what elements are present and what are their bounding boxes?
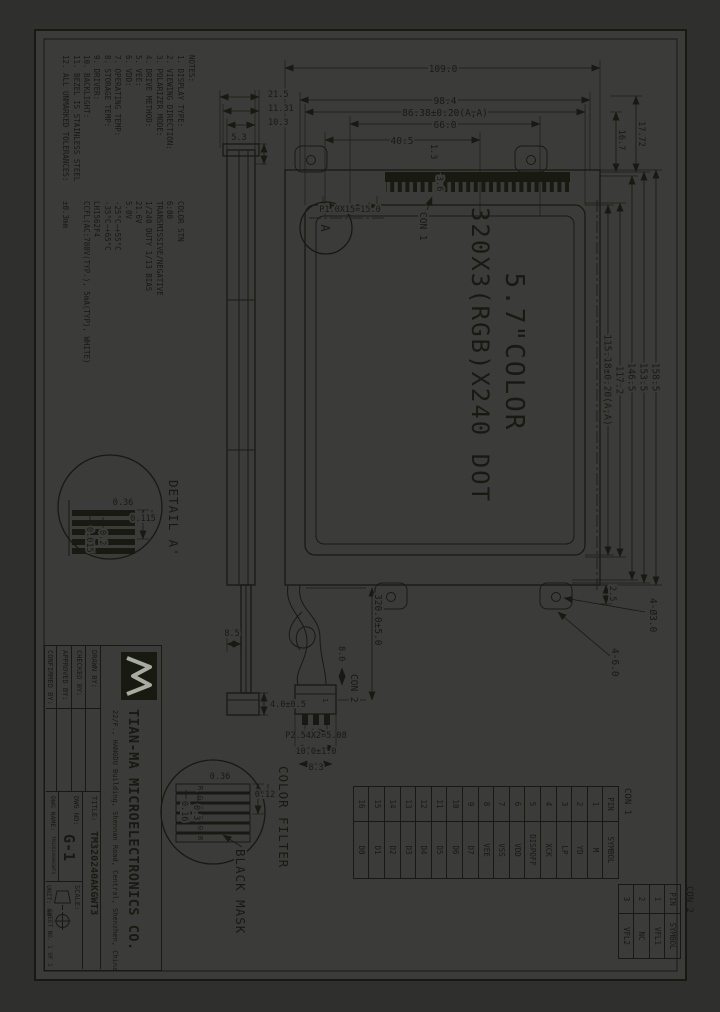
pin-cell: 2 [634,885,650,914]
detail-a-dim-width: 0.115 [130,514,156,524]
note-value: 5.0V [124,201,133,219]
con1-row: 9D7 [463,787,479,879]
note-label: 1. DISPLAY TYPE: [174,55,184,201]
detail-a-title: DETAIL A' [166,480,181,557]
con1-row: 5DISPOFF [525,787,541,879]
symbol-cell: D2 [385,822,401,879]
note-item-9: 9. DRIVER:LH1562F4 [91,55,101,365]
note-label: 4. DRIVE METHOD: [143,55,153,201]
con2-row: 2NC [634,885,650,959]
stripe-label-b2: B [196,836,204,840]
note-item-3: 3. POLARIZER MODE:TRANSMISSIVE/NEGATIVE [153,55,163,365]
con2-header-row: PINSYMBOL [665,885,681,959]
con1-row: 1M [587,787,603,879]
con2-table-title: CON 2 [684,886,694,959]
note-label: 10. BACKLIGHT: [81,55,91,201]
dim-height-2: 98.4 [434,96,457,107]
note-label: 9. DRIVER: [91,55,101,201]
note-item-4: 4. DRIVE METHOD:1/240 DUTY 1/13 BIAS [143,55,153,365]
approved-by-label: APPROVED BY: [61,646,71,701]
symbol-cell: LP [556,822,572,879]
dim-hole-offset: 2.5 [607,586,617,601]
color-filter-dim-3: 0.3 [191,805,201,820]
pin-cell: 1 [649,885,665,914]
dim-thickness-2: 11.31 [268,104,294,114]
con1-row: 6VDD [509,787,525,879]
dim-comb-width: 3.6 [434,176,444,191]
dim-con2-pitch: P2.54X2=5.08 [285,731,346,741]
note-item-1: 1. DISPLAY TYPE:COLOR STN [174,55,184,365]
note-item-7: 7. OPERATING TEMP:-25°C~+55°C [112,55,122,365]
symbol-cell: M [587,822,603,879]
pin-cell: 3 [618,885,634,914]
note-item-2: 2. VIEWING DIRECTION:6:00 [164,55,174,365]
note-value: COLOR STN [176,201,185,242]
con1-heatseal-pins [386,182,569,192]
dim-height-3: 66.0 [434,120,457,131]
dim-length-2: 153.5 [638,363,649,392]
dim-tabs: 4-6.0 [609,648,620,677]
con1-heatseal-bar [385,172,570,182]
note-item-8: 8. STORAGE TEMP:-35°C~+65°C [101,55,111,365]
con2-callout: CON 2 [348,674,359,703]
con2-pin-table: PINSYMBOL 1VFL1 2NC 3VFL2 [618,884,681,959]
dim-lip: 5.3 [231,133,246,143]
con2-pin1-label: 1 [321,698,329,702]
landscape-sheet: A CON 1 5.7"COLOR 320X3(RGB)X240 DOT 158… [0,0,720,1012]
dim-total-length: 158.5 [650,363,661,392]
pin-cell: 10 [447,787,463,822]
pin-cell: 14 [385,787,401,822]
con2-pin-header: PIN [665,885,681,914]
dim-total-height: 109.0 [429,64,458,75]
note-item-6: 6. VDD:5.0V [122,55,132,365]
con1-row: 11D5 [431,787,447,879]
dim-con1-pitch: P1.0X15=15.0 [319,205,380,215]
pin-cell: 4 [541,787,557,822]
note-value: LH1562F4 [92,201,101,237]
con1-header-row: PINSYMBOL [603,787,619,879]
note-value: -25°C~+55°C [113,201,122,251]
note-label: 5. VEE: [133,55,143,201]
note-value: CCFL(AC:780V(TYP.), 5mA(TYP), WHITE) [82,201,91,364]
detail-a-marker-label: A [318,224,332,232]
symbol-cell: D5 [431,822,447,879]
symbol-cell: D4 [416,822,432,879]
symbol-cell: XCK [541,822,557,879]
note-label: 8. STORAGE TEMP: [101,55,111,201]
color-filter-title: COLOR FILTER [276,766,291,868]
dim-thickness-3: 21.5 [268,90,288,100]
symbol-cell: VSS [494,822,510,879]
con1-row: 4XCK [541,787,557,879]
display-size-text: 5.7"COLOR [499,273,529,432]
pin-cell: 1 [587,787,603,822]
con1-row: 14D2 [385,787,401,879]
symbol-cell: D1 [369,822,385,879]
notes-block: NOTES: 1. DISPLAY TYPE:COLOR STN 2. VIEW… [60,55,196,365]
pin-cell: 3 [556,787,572,822]
pin-cell: 9 [463,787,479,822]
color-filter-dim-dot: 0.12 [255,790,275,800]
note-value: -35°C~+65°C [103,201,112,251]
company-name: TIAN-MA MICROELECTRONICS CO. [125,709,141,951]
note-value: TRANSMISSIVE/NEGATIVE [155,201,164,296]
pin-cell: 7 [494,787,510,822]
note-value: ±0.3mm [61,201,70,228]
con1-row: 12D4 [416,787,432,879]
con1-pin-header: PIN [603,787,619,822]
con1-row: 8VEE [478,787,494,879]
con1-symbol-header: SYMBOL [603,822,619,879]
dim-comb-offset: 1.3 [428,144,438,159]
pin-cell: 12 [416,787,432,822]
con1-callout: CON 1 [417,212,428,241]
con2-row: 3VFL2 [618,885,634,959]
dim-offset-1: 16.7 [616,130,626,150]
dim-length-3: 146.5 [626,363,637,392]
con1-pin-table: PINSYMBOL 1M 2YD 3LP 4XCK 5DISPOFF 6VDD … [353,786,619,879]
drawn-by-label: DRAWN BY: [90,646,100,688]
dim-thickness-1: 10.3 [268,118,288,128]
note-item-11: 11. BEZEL IS STAINLESS STEEL [70,55,80,365]
notes-heading: NOTES: [186,55,196,365]
dwg-no-value: G-1 [60,834,78,861]
con2-row: 1VFL1 [649,885,665,959]
pin-cell: 8 [478,787,494,822]
symbol-cell: D0 [353,822,369,879]
dim-con2-width: 10.0±1.0 [296,747,337,757]
stripe-label-g1: G [196,796,204,800]
note-item-12: 12. ALL UNMARKED TOLERANCES:±0.3mm [60,55,70,365]
note-value: 21.6V [134,201,143,224]
note-value: 1/240 DUTY 1/13 BIAS [144,201,153,291]
dim-window-length: 117.2 [614,366,625,395]
dwg-no-label: DWG NO: [72,796,80,826]
con1-row: 16D0 [353,787,369,879]
con2-table-block: CON 2 PINSYMBOL 1VFL1 2NC 3VFL2 [618,884,694,959]
title-value: TM320240AKGWT3 [88,831,99,915]
dim-active-height: 86.38±0.20(A,A) [402,108,488,119]
company-logo [121,652,157,700]
dim-height-4: 40.5 [391,136,414,147]
symbol-cell: D3 [400,822,416,879]
black-mask-label: BLACK MASK [233,849,248,934]
pin-cell: 2 [572,787,588,822]
symbol-cell: VEE [478,822,494,879]
scale-label: SCALE: [73,885,81,910]
note-item-5: 5. VEE:21.6V [133,55,143,365]
con1-row: 15D1 [369,787,385,879]
note-label: 11. BEZEL IS STAINLESS STEEL [70,55,80,201]
dim-con2-offset: 8.0 [336,646,346,661]
symbol-cell: D7 [463,822,479,879]
con1-row: 10D6 [447,787,463,879]
dwg-name-value: TM320240AKGWT3 [50,836,55,874]
pin-cell: 5 [525,787,541,822]
color-filter-dim-4: 0.16 [179,801,189,821]
con1-row: 3LP [556,787,572,879]
symbol-cell: VDD [509,822,525,879]
projection-symbol [54,889,71,945]
detail-a-dim-3: 0.2 [97,530,107,545]
dim-cable-length: 320.0±5.0 [372,594,383,646]
checked-by-label: CHECKED BY: [76,646,86,696]
note-label: 2. VIEWING DIRECTION: [164,55,174,201]
symbol-cell: DISPOFF [525,822,541,879]
dwg-name-label: DWG NAME: [49,796,57,831]
symbol-cell: VFL1 [649,914,665,959]
con2-symbol-header: SYMBOL [665,914,681,959]
note-label: 7. OPERATING TEMP: [112,55,122,201]
pin-cell: 11 [431,787,447,822]
con1-row: 7VSS [494,787,510,879]
detail-a-dim-4: 0.015 [84,527,94,553]
confirmed-by-label: CONFIRMED BY: [47,646,57,705]
pin-cell: 6 [509,787,525,822]
title-block: TIAN-MA MICROELECTRONICS CO. 22/F., HANG… [44,645,162,971]
symbol-cell: VFL2 [618,914,634,959]
sheet-number: SHEET NO. 1 OF 1 [46,909,53,967]
color-filter-dim-pitch: 0.36 [210,772,230,782]
display-resolution-text: 320X3(RGB)X240 DOT [466,207,494,503]
symbol-cell: D6 [447,822,463,879]
unit-key: UNIT: [45,885,53,905]
note-label: 12. ALL UNMARKED TOLERANCES: [60,55,70,201]
title-label: TITLE: [90,796,98,821]
note-value: 6:00 [165,201,174,219]
dim-holes: 4-Ø3.0 [647,598,658,633]
drawing-page: A CON 1 5.7"COLOR 320X3(RGB)X240 DOT 158… [0,0,720,1012]
company-address: 22/F., HANGDU Building, Shennan Road, Ce… [111,710,119,971]
detail-a-dim-pitch: 0.36 [113,498,133,508]
dim-cap-width: 4.0±0.5 [270,700,306,710]
note-label: 3. POLARIZER MODE: [153,55,163,201]
symbol-cell: NC [634,914,650,959]
note-item-10: 10. BACKLIGHT:CCFL(AC:780V(TYP.), 5mA(TY… [81,55,91,365]
con1-row: 2YD [572,787,588,879]
con1-table-block: CON 1 PINSYMBOL 1M 2YD 3LP 4XCK 5DISPOFF… [353,786,632,879]
pin-cell: 13 [400,787,416,822]
dim-lamp: 8.5 [224,629,239,639]
dim-active-length: 115.18±0.20(A,A) [602,334,613,426]
dim-offset-2: 17.72 [636,121,646,147]
pin-cell: 15 [369,787,385,822]
con1-row: 13D3 [400,787,416,879]
pin-cell: 16 [353,787,369,822]
note-label: 6. VDD: [122,55,132,201]
dim-con2-width-2: 8.3 [308,763,323,773]
stripe-label-g2: G [196,826,204,830]
symbol-cell: YD [572,822,588,879]
con1-table-title: CON 1 [622,788,632,879]
